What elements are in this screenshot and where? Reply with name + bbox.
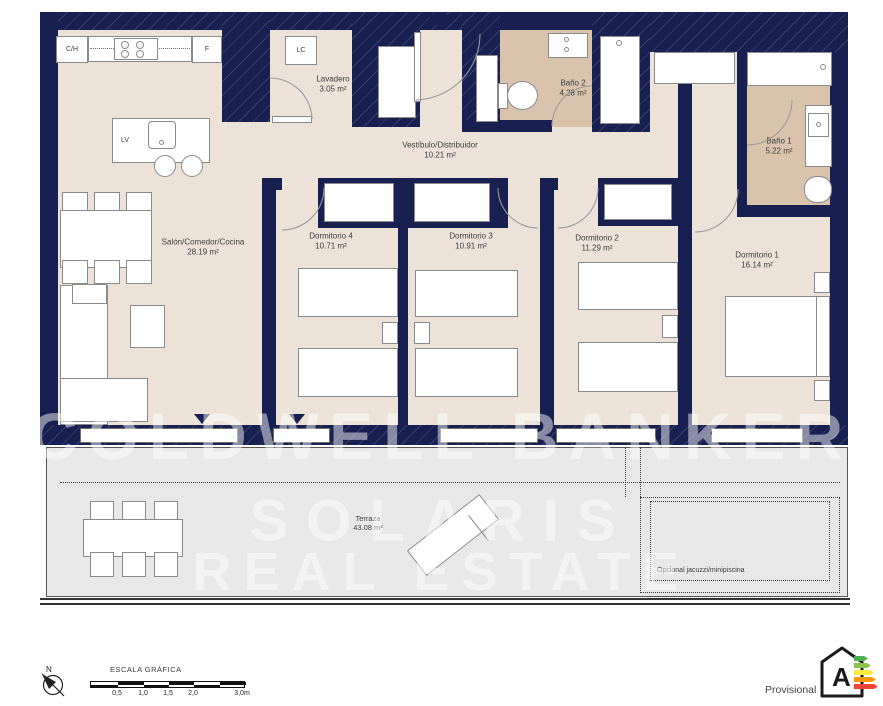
wall-segment (830, 12, 848, 445)
kitchen-hob (114, 38, 158, 60)
room-area: 28.19 m² (162, 247, 245, 257)
nightstand (414, 322, 430, 344)
window (556, 428, 656, 443)
nightstand (814, 272, 830, 293)
bed (578, 342, 678, 392)
nightstand (814, 380, 830, 401)
window (711, 428, 803, 443)
scale-bar (90, 681, 245, 688)
wall-segment (500, 12, 592, 30)
room-area: 10.91 m² (449, 241, 493, 251)
wall-segment (678, 84, 692, 425)
scale-segment (118, 682, 144, 685)
fridge-label: F (205, 46, 209, 53)
double-bed (725, 296, 830, 377)
wall-segment (737, 205, 848, 217)
scale-segment (194, 685, 220, 688)
sink-drain-icon (816, 122, 821, 127)
fridge: F (192, 36, 222, 63)
room-name: Dormitorio 3 (449, 231, 493, 241)
scale-tick-label: 1,5 (163, 690, 173, 697)
wall-segment (262, 178, 282, 190)
toilet-bowl (804, 176, 832, 203)
bar-stool (181, 155, 203, 177)
scale-tick-label: 3,0m (234, 690, 250, 697)
corridor-wardrobe (654, 52, 735, 84)
room-name: Terraza (353, 514, 383, 523)
shower-drain-icon (616, 40, 622, 46)
room-area: 11.29 m² (575, 243, 619, 253)
wall-segment (650, 12, 848, 52)
laundry-closet: LC (285, 36, 317, 65)
bedroom2-closet (604, 184, 672, 220)
hob-burner (136, 50, 144, 58)
room-label-dorm1: Dormitorio 1 16.14 m² (735, 250, 779, 269)
room-name: Vestíbulo/Distribuidor (402, 140, 478, 150)
room-area: 4.28 m² (559, 88, 586, 98)
entry-door-leaf (414, 32, 421, 102)
wall-segment (737, 52, 747, 217)
wall-segment (540, 190, 554, 425)
room-label-dorm3: Dormitorio 3 10.91 m² (449, 231, 493, 250)
dishwasher-label: LV (121, 137, 129, 144)
wall-segment (40, 12, 58, 445)
window (80, 428, 238, 443)
scale-segment (144, 685, 169, 688)
energy-rating-icon: A (818, 644, 876, 700)
window (273, 428, 330, 443)
scale-tick-label: 2,0 (188, 690, 198, 697)
toilet-bowl (507, 81, 538, 110)
room-label-salon: Salón/Comedor/Cocina 28.19 m² (162, 237, 245, 256)
room-area: 43.08 m² (353, 523, 383, 532)
room-label-bano2: Baño 2 4.28 m² (559, 78, 586, 97)
shower-drain-icon (820, 64, 826, 70)
scale-tick-label: 1,0 (138, 690, 148, 697)
dining-chair (126, 260, 152, 284)
room-name: Baño 2 (559, 78, 586, 88)
room-area: 16.14 m² (735, 260, 779, 270)
jacuzzi-note-label: Opcional jacuzzi/minipiscina (657, 567, 745, 574)
hob-burner (121, 50, 129, 58)
compass-n-label: N (46, 665, 52, 674)
room-area: 5.22 m² (765, 146, 792, 156)
wall-segment (540, 178, 558, 190)
terrace-dotted-line (60, 482, 840, 483)
bed-headboard-line (816, 296, 817, 377)
scale-segment (169, 682, 194, 685)
room-area: 3.05 m² (316, 84, 349, 94)
room-name: Dormitorio 1 (735, 250, 779, 260)
scale-bar-title: ESCALA GRÁFICA (110, 666, 182, 674)
bedroom3-closet (414, 183, 490, 222)
bed (298, 348, 398, 397)
sofa-cushion (72, 284, 107, 304)
room-name: Lavadero (316, 74, 349, 84)
laundry-closet-label: LC (297, 47, 306, 54)
bed (415, 348, 518, 397)
scale-tick-label: 0,5 (112, 690, 122, 697)
scale-segment (220, 682, 246, 685)
bed (415, 270, 518, 317)
hob-burner (121, 41, 129, 49)
north-compass-icon: N (36, 660, 72, 700)
kitchen-ch-unit: C/H (56, 36, 88, 63)
coffee-table (130, 305, 165, 348)
nightstand (662, 315, 678, 338)
floor-plan-page: { "plan": { "type": "apartment-floor-pla… (0, 0, 883, 706)
wall-segment (262, 190, 276, 425)
bathroom1-upper-closet (747, 52, 832, 86)
laundry-door-leaf (272, 116, 312, 123)
bed (578, 262, 678, 310)
nightstand (382, 322, 398, 344)
room-name: Salón/Comedor/Cocina (162, 237, 245, 247)
scale-segment (91, 685, 118, 688)
hob-burner (136, 41, 144, 49)
sofa-chaise (60, 378, 148, 422)
terrace-chair (154, 552, 178, 577)
ch-label: C/H (66, 46, 78, 53)
room-area: 10.21 m² (402, 150, 478, 160)
energy-rating-letter: A (832, 662, 851, 692)
bedroom4-closet (324, 183, 394, 222)
sink-drain-icon (159, 140, 164, 145)
hall-wardrobe (378, 46, 416, 118)
room-label-dorm2: Dormitorio 2 11.29 m² (575, 233, 619, 252)
wall-segment (398, 228, 408, 425)
dining-chair (94, 260, 120, 284)
faucet-icon (564, 37, 569, 42)
bed (298, 268, 398, 317)
terrace-railing (40, 598, 850, 605)
room-area: 10.71 m² (309, 241, 353, 251)
terrace-chair (90, 552, 114, 577)
room-label-dorm4: Dormitorio 4 10.71 m² (309, 231, 353, 250)
bathroom2-shower (600, 36, 640, 124)
room-name: Dormitorio 4 (309, 231, 353, 241)
room-label-lavadero: Lavadero 3.05 m² (316, 74, 349, 93)
terrace-chair (122, 552, 146, 577)
room-label-terraza: Terraza 43.08 m² (353, 514, 383, 532)
window (440, 428, 538, 443)
room-name: Dormitorio 2 (575, 233, 619, 243)
bar-stool (154, 155, 176, 177)
wall-segment (222, 12, 270, 122)
provisional-label: Provisional (765, 684, 816, 696)
room-label-vestibulo: Vestíbulo/Distribuidor 10.21 m² (402, 140, 478, 159)
faucet-icon (564, 47, 569, 52)
terrace-dotted-divider-1 (625, 447, 626, 497)
room-name: Baño 1 (765, 136, 792, 146)
shower-column (476, 55, 498, 122)
room-label-bano1: Baño 1 5.22 m² (765, 136, 792, 155)
dining-chair (62, 260, 88, 284)
